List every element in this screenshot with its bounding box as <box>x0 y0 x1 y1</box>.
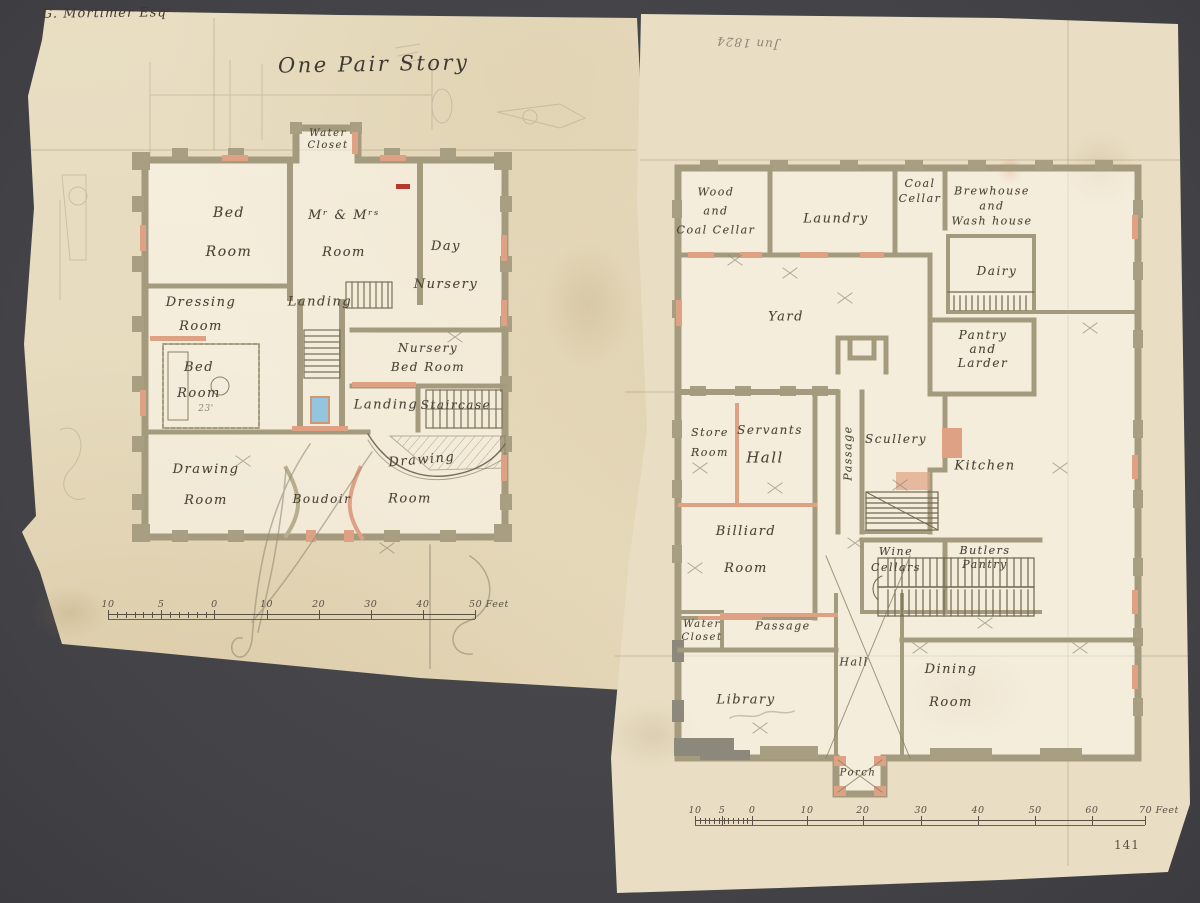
right-label-scullery: Scullery <box>865 433 927 447</box>
left-label-bed-room: BedRoom <box>206 194 253 272</box>
right-label-wine-cellars: WineCellars <box>871 544 921 576</box>
right-label-kitchen: Kitchen <box>954 460 1015 475</box>
left-label-landing: Landing <box>354 399 418 414</box>
scale-tick-label: 20 <box>312 599 325 610</box>
paper-creases <box>30 18 1188 866</box>
scale-tick-label: 0 <box>749 805 756 816</box>
left-label-room: Room <box>388 493 432 508</box>
right-label-brewhouse-and-wash-house: BrewhouseandWash house <box>951 184 1032 229</box>
scale-tick-label: 5 <box>719 805 726 816</box>
right-label-porch: Porch <box>840 767 877 779</box>
right-label-water-closet: WaterCloset <box>682 618 723 644</box>
owner-inscription: G. Mortimer Esqʳ <box>42 5 172 21</box>
left-label-23-: 23' <box>198 404 213 414</box>
scale-bar-right: 105010203040506070 Feet <box>695 820 1145 826</box>
right-label-store-room: StoreRoom <box>691 423 729 463</box>
pencil-date-note: Jun 1824 <box>716 34 779 52</box>
right-label-hall: Hall <box>746 449 784 466</box>
right-label-passage: Passage <box>843 425 856 480</box>
right-label-passage: Passage <box>755 621 810 634</box>
right-label-wood-and-coal-cellar: WoodandCoal Cellar <box>677 183 756 240</box>
scale-tick-label: 5 <box>158 599 165 610</box>
scale-tick-label: 30 <box>914 805 927 816</box>
scale-tick-label: 10 <box>101 599 114 610</box>
right-label-pantry-and-larder: PantryandLarder <box>958 328 1008 370</box>
plan-title: One Pair Story <box>278 50 470 77</box>
right-label-coal-cellar: CoalCellar <box>899 176 942 206</box>
right-label-billiard-room: BilliardRoom <box>716 513 776 587</box>
right-label-butlers-pantry: ButlersPantry <box>959 544 1010 572</box>
left-label-boudoir: Boudoir <box>293 493 352 507</box>
right-label-hall: Hall <box>839 657 868 670</box>
scale-tick-label: 10 <box>260 599 273 610</box>
left-label-nursery-bed-room: NurseryBed Room <box>391 339 465 377</box>
left-label-drawing: Drawing <box>388 451 456 472</box>
scale-bar-left: 10501020304050 Feet <box>108 614 475 620</box>
scale-tick-label: 20 <box>856 805 869 816</box>
scale-tick-label: 40 <box>416 599 429 610</box>
stain <box>30 585 110 640</box>
archival-number: 141 <box>1114 838 1140 852</box>
left-label-landing: Landing <box>288 296 352 311</box>
scale-tick-label: 30 <box>364 599 377 610</box>
scale-tick-label: 0 <box>211 599 218 610</box>
left-label-staircase: Staircase <box>421 399 491 413</box>
scale-tick-label: 70 Feet <box>1139 805 1179 816</box>
scanned-drawing-canvas: G. Mortimer Esqʳ One Pair Story Jun 1824… <box>0 0 1200 903</box>
right-label-library: Library <box>716 694 775 709</box>
right-label-servants: Servants <box>737 424 803 438</box>
stain <box>997 158 1023 184</box>
right-label-dairy: Dairy <box>977 265 1018 279</box>
pencil-sketches <box>60 44 585 499</box>
scale-tick-label: 60 <box>1085 805 1098 816</box>
right-label-dining-room: DiningRoom <box>925 653 978 719</box>
plans-linework <box>0 0 1200 903</box>
left-label-m-m-room: Mʳ & MʳˢRoom <box>308 197 380 271</box>
stain <box>540 240 635 370</box>
scale-tick-label: 10 <box>688 805 701 816</box>
paper-sheet-left <box>0 0 1200 903</box>
left-label-water-closet: WaterCloset <box>308 128 349 152</box>
paper-sheet-right <box>0 0 1200 903</box>
left-label-dressing-room: DressingRoom <box>166 291 237 339</box>
left-label-drawing-room: DrawingRoom <box>173 454 240 516</box>
scale-tick-label: 40 <box>972 805 985 816</box>
stain <box>1060 130 1140 210</box>
scale-tick-label: 10 <box>801 805 814 816</box>
scale-tick-label: 50 Feet <box>469 599 509 610</box>
right-label-laundry: Laundry <box>803 213 869 228</box>
left-label-bed-room: BedRoom <box>177 355 221 407</box>
right-label-yard: Yard <box>768 311 804 326</box>
left-label-day-nursery: DayNursery <box>414 228 478 304</box>
scale-tick-label: 50 <box>1029 805 1042 816</box>
stain <box>605 700 700 770</box>
